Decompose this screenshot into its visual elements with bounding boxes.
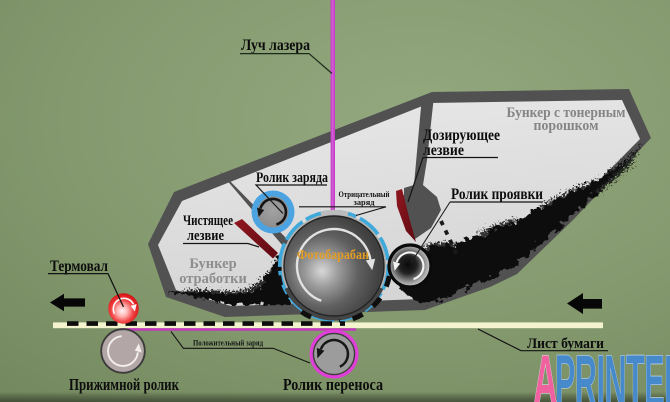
- svg-text:Фотобарабан: Фотобарабан: [297, 247, 369, 262]
- svg-text:PRINTER: PRINTER: [555, 339, 670, 402]
- svg-text:Ролик проявки: Ролик проявки: [451, 186, 543, 203]
- svg-text:A: A: [533, 341, 558, 402]
- svg-text:Термовал: Термовал: [50, 258, 108, 275]
- svg-text:лезвие: лезвие: [187, 228, 224, 244]
- svg-text:отработки: отработки: [179, 271, 247, 287]
- svg-text:лезвие: лезвие: [423, 142, 464, 159]
- svg-text:Положительный заряд: Положительный заряд: [193, 339, 264, 348]
- svg-text:заряд: заряд: [354, 198, 376, 207]
- svg-text:порошком: порошком: [534, 118, 599, 134]
- svg-text:Бункер: Бункер: [189, 256, 236, 272]
- svg-text:Прижимной ролик: Прижимной ролик: [69, 375, 179, 394]
- svg-text:Луч лазера: Луч лазера: [241, 37, 310, 54]
- svg-text:Чистящее: Чистящее: [183, 213, 233, 229]
- svg-text:Ролик заряда: Ролик заряда: [256, 170, 328, 186]
- svg-text:Ролик переноса: Ролик переноса: [283, 375, 383, 394]
